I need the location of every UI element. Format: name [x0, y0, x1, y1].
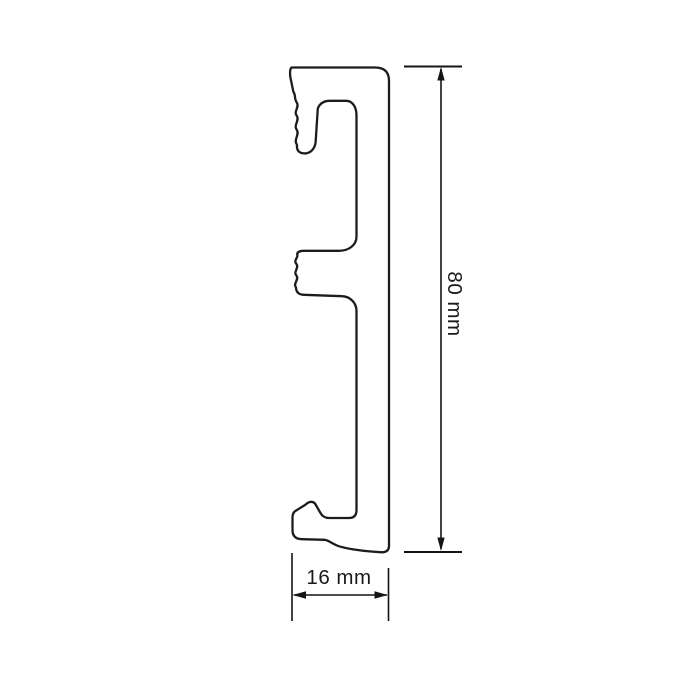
profile-cross-section-outline [290, 68, 389, 553]
technical-drawing-canvas: 80 mm 16 mm [0, 0, 675, 675]
height-dimension-label: 80 mm [443, 271, 466, 336]
width-dimension: 16 mm [292, 553, 389, 621]
arrow-right-icon [375, 591, 389, 598]
height-dimension: 80 mm [404, 67, 466, 553]
arrow-down-icon [437, 538, 444, 552]
arrow-left-icon [293, 591, 307, 598]
skirting-profile-diagram: 80 mm 16 mm [0, 0, 675, 675]
width-dimension-label: 16 mm [306, 566, 371, 589]
arrow-up-icon [437, 67, 444, 81]
